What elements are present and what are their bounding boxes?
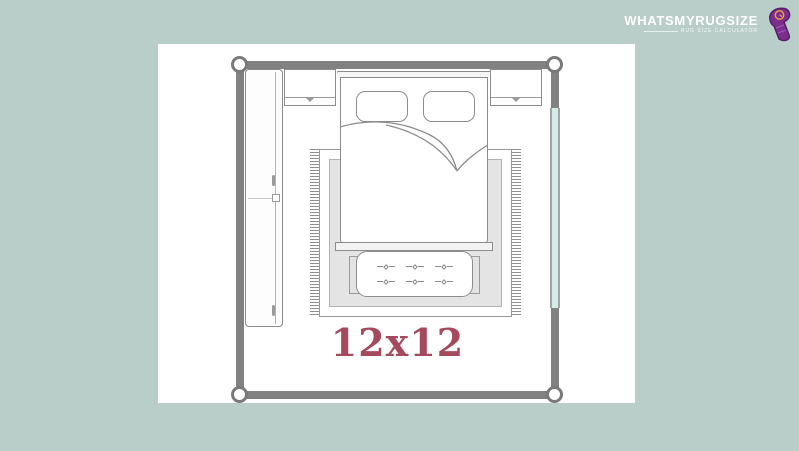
wall-top: [236, 61, 559, 69]
bench-tuft: [377, 265, 395, 269]
window: [550, 108, 560, 308]
bed-footboard: [335, 242, 493, 251]
bench: [356, 251, 473, 297]
rolled-rug-icon: [763, 6, 795, 42]
bench-tuft: [406, 265, 424, 269]
wall-post-bottom-right: [546, 386, 563, 403]
bench-tuft: [377, 280, 395, 284]
wall-post-bottom-left: [231, 386, 248, 403]
pillow-left: [356, 91, 408, 122]
wardrobe: [245, 69, 283, 327]
rug-size-label: 12x12: [236, 320, 559, 365]
logo-text-block: WHATSMYRUGSIZE RUG SIZE CALCULATOR: [624, 13, 758, 35]
tagline-rule: [644, 31, 678, 32]
nightstand-handle: [512, 98, 520, 102]
wall-bottom: [236, 391, 559, 399]
bench-tuft: [435, 265, 453, 269]
wall-post-top-right: [546, 56, 563, 73]
logo-tagline: RUG SIZE CALCULATOR: [624, 28, 758, 35]
nightstand-handle: [306, 98, 314, 102]
nightstand-left: [284, 69, 336, 106]
wardrobe-handle-top: [272, 175, 275, 186]
rug-fringe-left: [310, 149, 319, 317]
wardrobe-handle-bottom: [272, 305, 275, 316]
floorplan-panel: 12x12: [158, 44, 635, 403]
rug-fringe-right: [512, 149, 521, 317]
bench-tuft: [406, 280, 424, 284]
wall-left: [236, 61, 244, 399]
bench-tuft: [435, 280, 453, 284]
nightstand-right: [490, 69, 542, 106]
wardrobe-handle-square: [272, 194, 280, 202]
site-logo[interactable]: WHATSMYRUGSIZE RUG SIZE CALCULATOR: [624, 6, 795, 42]
pillow-right: [423, 91, 475, 122]
logo-title: WHATSMYRUGSIZE: [624, 13, 758, 28]
wall-post-top-left: [231, 56, 248, 73]
logo-tagline-text: RUG SIZE CALCULATOR: [681, 28, 758, 35]
